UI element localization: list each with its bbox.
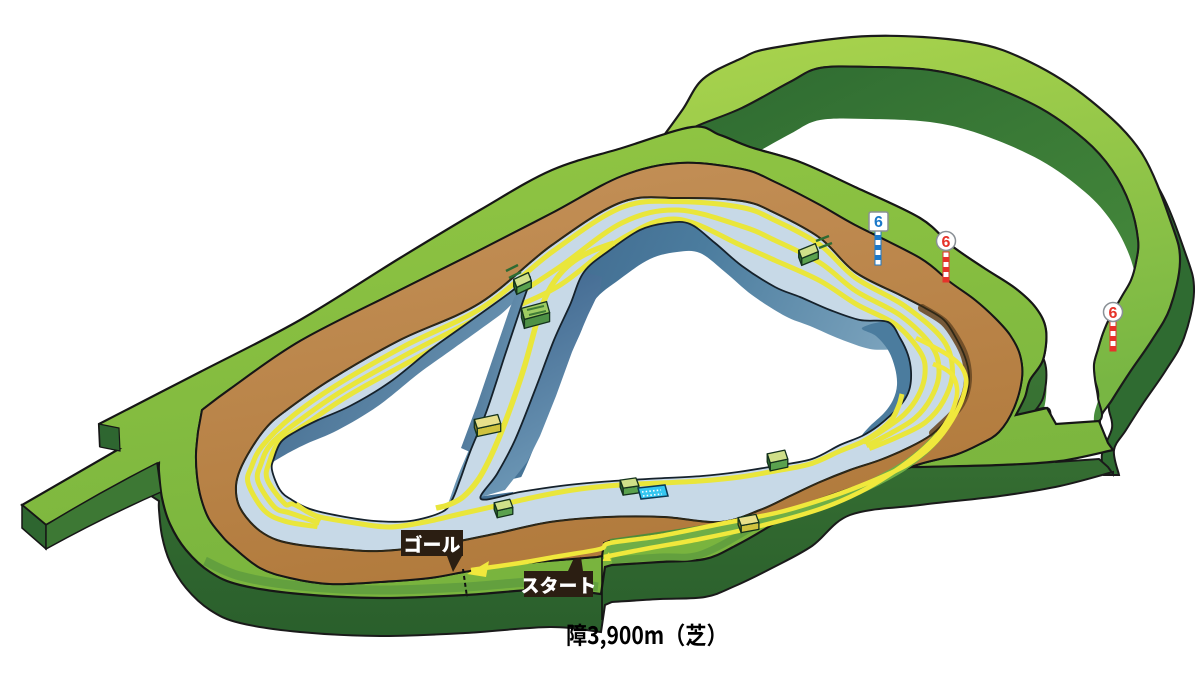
svg-text:6: 6 [1109, 305, 1118, 322]
svg-text:6: 6 [942, 234, 951, 251]
svg-text:6: 6 [874, 214, 883, 231]
